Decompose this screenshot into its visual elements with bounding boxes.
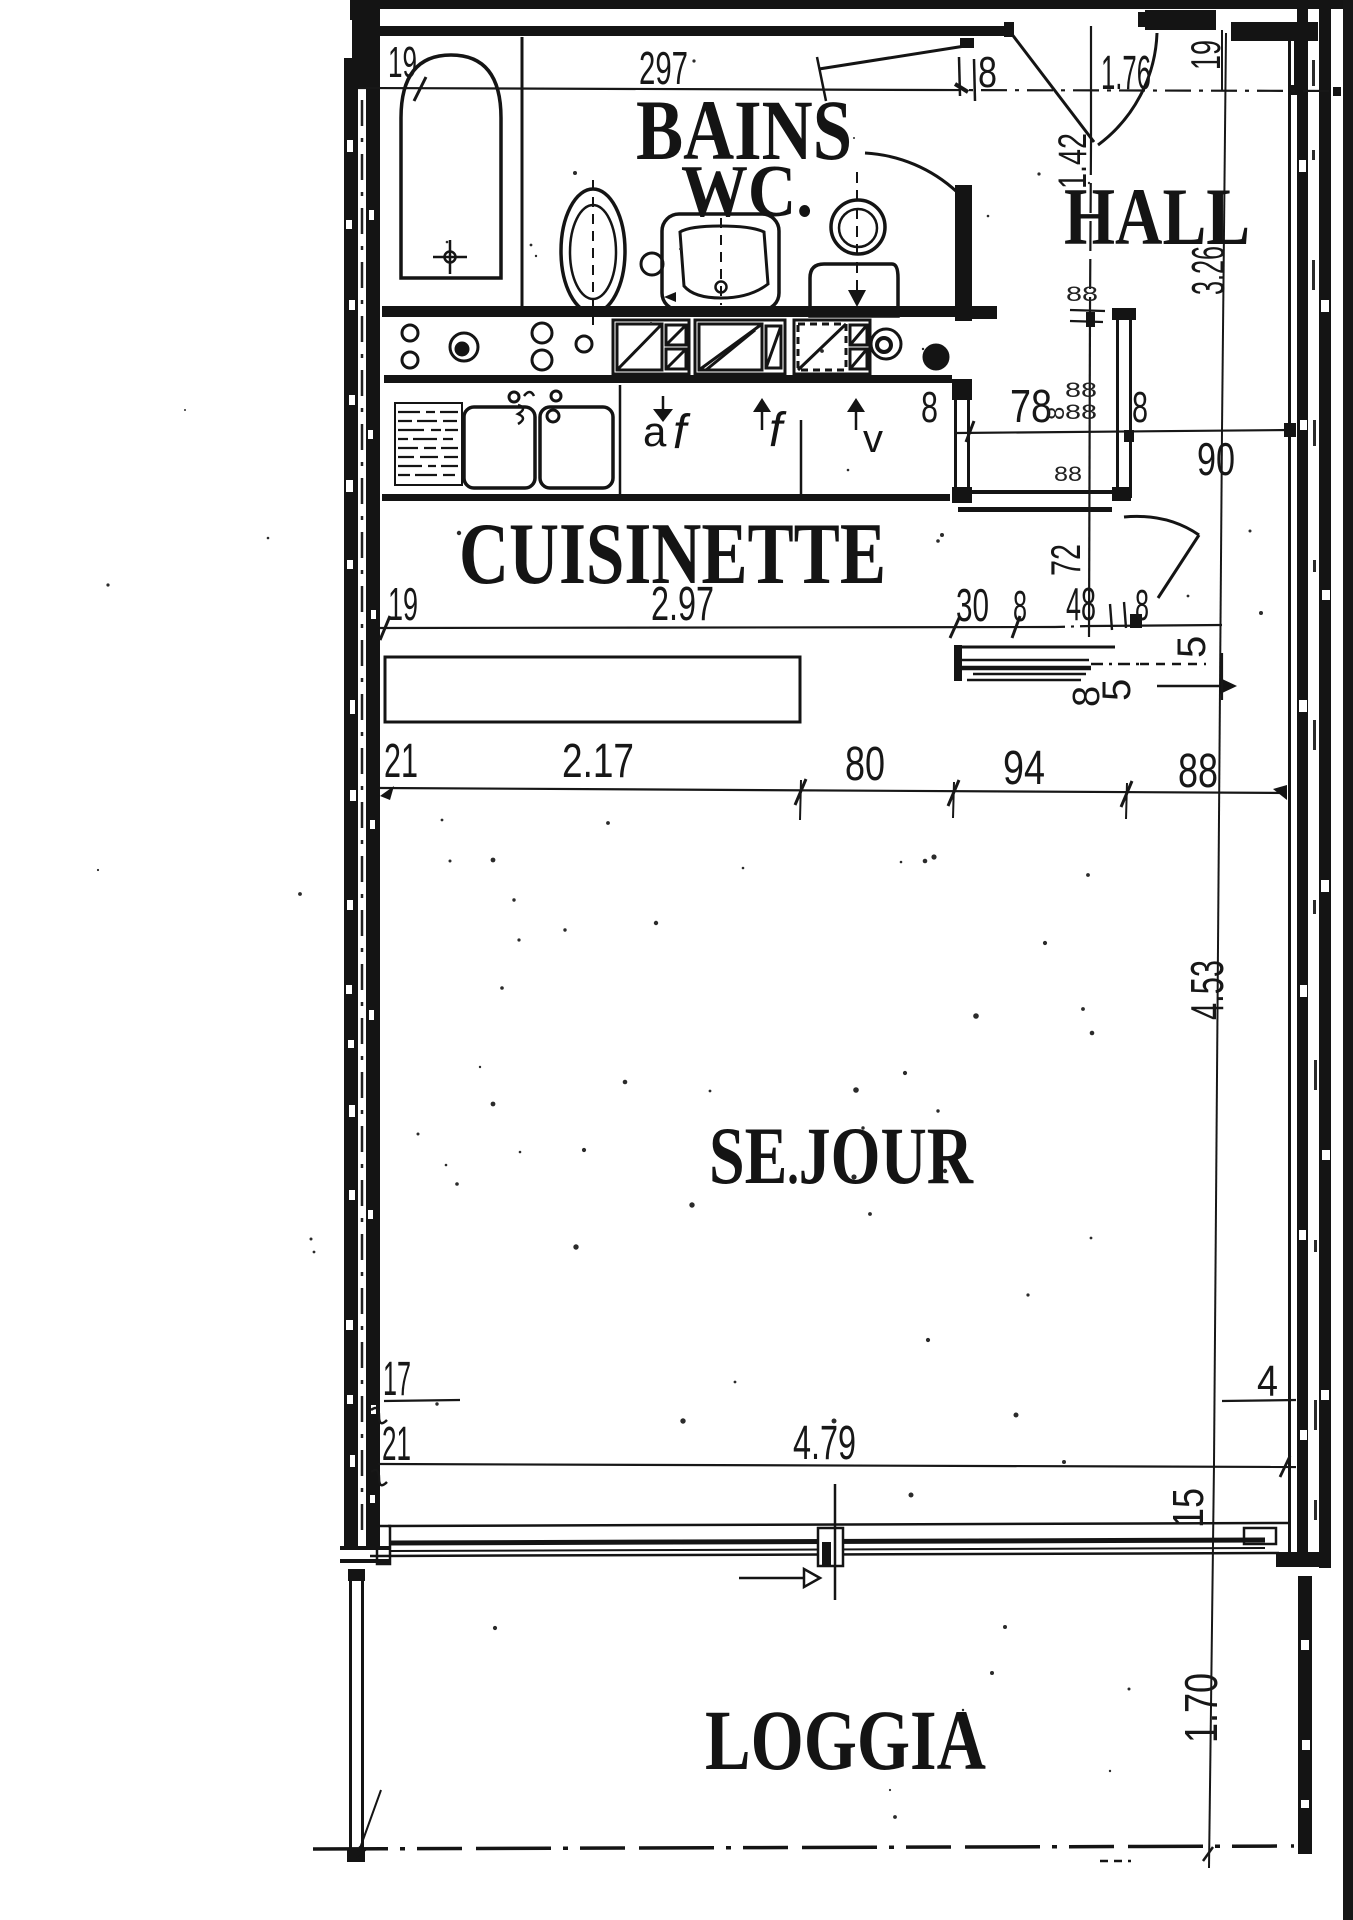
svg-text:5: 5 (1170, 636, 1214, 658)
svg-text:19: 19 (1182, 40, 1229, 70)
svg-text:8: 8 (1135, 581, 1149, 630)
svg-text:15: 15 (1164, 1488, 1213, 1528)
svg-text:8: 8 (1013, 582, 1027, 631)
svg-text:90: 90 (1197, 433, 1235, 485)
svg-text:21: 21 (382, 1418, 411, 1471)
svg-text:88: 88 (1066, 283, 1098, 306)
svg-text:17: 17 (383, 1353, 411, 1406)
svg-text:19: 19 (388, 578, 418, 630)
svg-text:88: 88 (1065, 379, 1097, 402)
svg-text:4: 4 (1257, 1357, 1278, 1406)
svg-text:1.76: 1.76 (1101, 47, 1151, 100)
svg-text:30: 30 (956, 579, 989, 631)
svg-text:3.26: 3.26 (1182, 246, 1234, 295)
svg-text:2.97: 2.97 (651, 578, 714, 631)
svg-text:72: 72 (1042, 544, 1089, 576)
svg-text:SE.JOUR: SE.JOUR (709, 1110, 974, 1201)
svg-text:94: 94 (1003, 742, 1045, 795)
svg-text:78: 78 (1010, 380, 1052, 432)
svg-text:8: 8 (921, 383, 938, 432)
svg-text:8: 8 (978, 48, 997, 97)
svg-text:LOGGIA: LOGGIA (705, 1692, 986, 1788)
svg-text:48: 48 (1066, 578, 1096, 630)
svg-text:8: 8 (1066, 686, 1108, 707)
svg-text:8: 8 (1132, 383, 1148, 432)
svg-text:88: 88 (1178, 745, 1218, 798)
svg-text:v: v (863, 417, 883, 461)
svg-text:4.53: 4.53 (1181, 960, 1233, 1020)
svg-text:19: 19 (388, 38, 417, 87)
svg-text:4.79: 4.79 (793, 1417, 856, 1470)
svg-text:297: 297 (639, 42, 688, 94)
svg-text:a: a (643, 408, 667, 455)
svg-text:WC.: WC. (681, 151, 813, 233)
svg-text:21: 21 (384, 735, 418, 788)
svg-text:1.70: 1.70 (1175, 1673, 1227, 1743)
svg-text:1.42: 1.42 (1051, 133, 1095, 189)
svg-text:80: 80 (845, 738, 885, 791)
svg-text:88: 88 (1054, 463, 1082, 486)
svg-text:8: 8 (1043, 407, 1070, 420)
svg-text:2.17: 2.17 (562, 735, 634, 788)
